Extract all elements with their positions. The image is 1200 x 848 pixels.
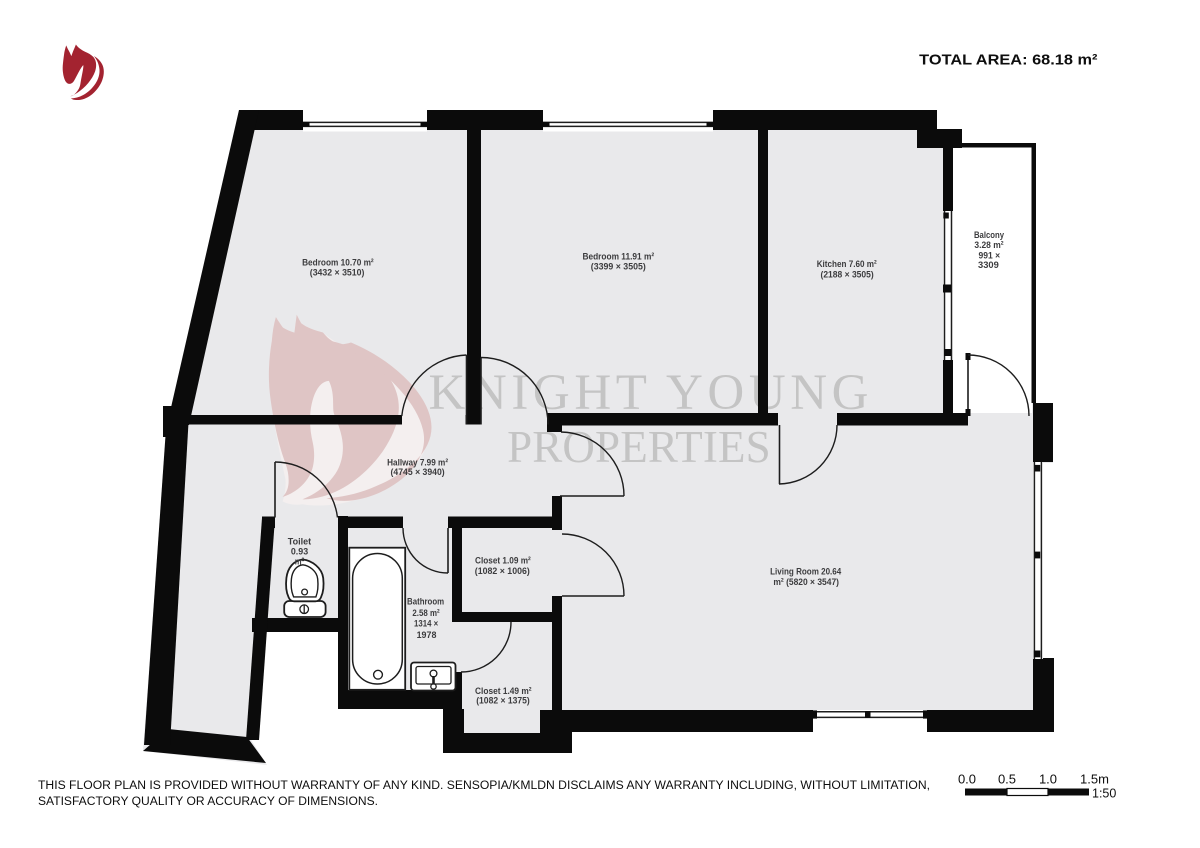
svg-text:(2188 × 3505): (2188 × 3505) [821, 270, 874, 280]
svg-text:3.28 m²: 3.28 m² [974, 240, 1003, 250]
svg-text:PROPERTIES: PROPERTIES [507, 422, 771, 472]
svg-text:Living Room 20.64: Living Room 20.64 [770, 566, 842, 576]
svg-text:Closet 1.09 m²: Closet 1.09 m² [475, 556, 531, 566]
svg-text:1314 ×: 1314 × [414, 619, 439, 629]
svg-text:Bedroom 10.70 m²: Bedroom 10.70 m² [302, 258, 374, 268]
svg-text:0.5: 0.5 [998, 772, 1016, 787]
svg-text:TOTAL AREA: 68.18 m²: TOTAL AREA: 68.18 m² [919, 51, 1097, 68]
svg-text:Kitchen 7.60 m²: Kitchen 7.60 m² [817, 259, 877, 269]
svg-text:0.93: 0.93 [291, 546, 308, 556]
svg-text:Toilet: Toilet [288, 536, 311, 546]
svg-text:Bedroom 11.91 m²: Bedroom 11.91 m² [582, 251, 654, 261]
svg-text:(3432 × 3510): (3432 × 3510) [310, 268, 365, 278]
svg-text:Bathroom: Bathroom [407, 597, 444, 607]
svg-text:THIS FLOOR PLAN IS PROVIDED WI: THIS FLOOR PLAN IS PROVIDED WITHOUT WARR… [38, 780, 930, 792]
svg-text:(1082 × 1006): (1082 × 1006) [475, 566, 530, 576]
svg-text:0.0: 0.0 [958, 772, 976, 787]
svg-text:1:50: 1:50 [1092, 787, 1116, 801]
svg-text:(4745 × 3940): (4745 × 3940) [391, 467, 445, 477]
svg-text:m² (5820 × 3547): m² (5820 × 3547) [773, 577, 839, 587]
svg-text:m²: m² [295, 556, 304, 566]
svg-text:SATISFACTORY QUALITY OR ACCURA: SATISFACTORY QUALITY OR ACCURACY OF DIME… [38, 796, 378, 808]
svg-text:(1082 × 1375): (1082 × 1375) [476, 696, 530, 706]
svg-text:1.5m: 1.5m [1080, 772, 1109, 787]
svg-text:991 ×: 991 × [979, 250, 1001, 260]
svg-text:1.0: 1.0 [1039, 772, 1057, 787]
svg-text:3309: 3309 [978, 260, 999, 270]
svg-text:1978: 1978 [417, 630, 437, 640]
svg-text:Hallway 7.99 m²: Hallway 7.99 m² [387, 457, 448, 467]
svg-text:Closet 1.49 m²: Closet 1.49 m² [475, 686, 532, 696]
svg-text:(3399 × 3505): (3399 × 3505) [591, 261, 646, 271]
svg-text:Balcony: Balcony [974, 230, 1005, 240]
svg-text:2.58 m²: 2.58 m² [412, 608, 439, 618]
